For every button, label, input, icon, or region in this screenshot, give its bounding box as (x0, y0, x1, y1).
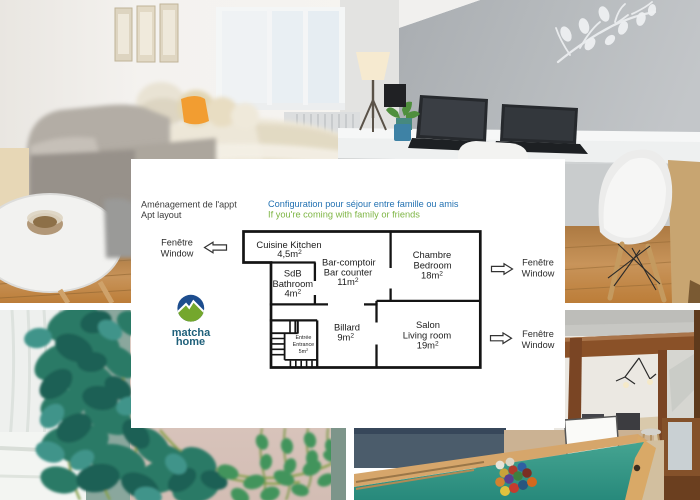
svg-text:home: home (176, 336, 205, 348)
svg-text:Chambre: Chambre (413, 249, 452, 260)
svg-text:Fenêtre: Fenêtre (161, 238, 193, 248)
svg-text:Configuration pour séjour entr: Configuration pour séjour entre famille … (268, 199, 459, 209)
svg-text:19m2: 19m2 (417, 339, 439, 350)
svg-text:Entrée: Entrée (295, 335, 311, 341)
svg-text:SdB: SdB (284, 267, 302, 278)
svg-text:5m2: 5m2 (299, 348, 309, 355)
svg-text:If you're coming with family o: If you're coming with family or friends (268, 210, 420, 220)
svg-text:11m2: 11m2 (337, 276, 359, 287)
svg-text:9m2: 9m2 (337, 332, 354, 343)
svg-text:Window: Window (522, 269, 555, 279)
svg-text:Aménagement de l'appt: Aménagement de l'appt (141, 200, 237, 210)
svg-text:4m2: 4m2 (284, 288, 301, 299)
svg-text:4,5m2: 4,5m2 (277, 248, 302, 259)
svg-text:Apt layout: Apt layout (141, 210, 182, 220)
svg-text:Window: Window (161, 249, 194, 259)
svg-text:Fenêtre: Fenêtre (522, 329, 554, 339)
svg-text:18m2: 18m2 (421, 269, 443, 280)
svg-text:Window: Window (522, 340, 555, 350)
svg-text:Fenêtre: Fenêtre (522, 257, 554, 267)
svg-text:Salon: Salon (416, 319, 440, 330)
svg-text:Entrance: Entrance (293, 342, 315, 348)
